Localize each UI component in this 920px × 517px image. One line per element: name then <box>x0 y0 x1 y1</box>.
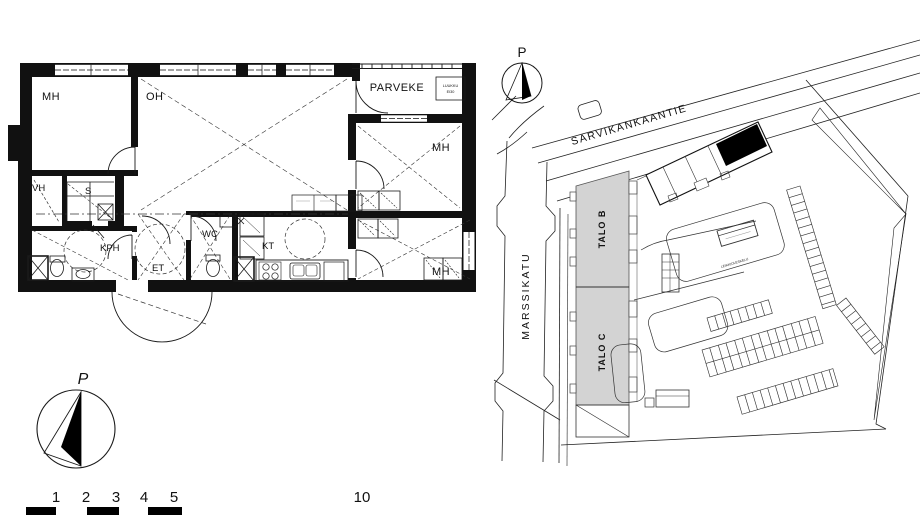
room-label-mh-bottom-right: MH <box>432 266 450 278</box>
scale-bar-segment <box>148 507 182 515</box>
play-area-structure <box>717 220 758 246</box>
site-plan-streets <box>492 40 920 466</box>
room-label-mh-top-right: MH <box>432 142 450 154</box>
floor-plan-labels: MH OH PARVEKE MH MH VH S KPH ET WC KT LU… <box>32 82 458 278</box>
scale-label-10: 10 <box>354 489 371 506</box>
room-label-wc: WC <box>202 229 218 240</box>
room-label-sauna: S <box>85 186 91 197</box>
room-label-mh-top-left: MH <box>42 91 60 103</box>
floor-plan: MH OH PARVEKE MH MH VH S KPH ET WC KT LU… <box>8 63 476 342</box>
room-label-kt: KT <box>262 241 274 252</box>
site-plan-parking <box>702 186 884 414</box>
room-label-oh: OH <box>146 91 164 103</box>
plan-canvas: MH OH PARVEKE MH MH VH S KPH ET WC KT LU… <box>0 0 920 517</box>
scale-label-1: 1 <box>52 489 60 506</box>
site-plan: SARVIKANKAANTIE MARSSIKATU TALO B TALO C… <box>492 40 920 466</box>
floor-plan-compass-label: P <box>78 371 89 388</box>
site-plan-compass: P <box>502 45 542 103</box>
compass-needle <box>61 392 81 466</box>
scale-label-3: 3 <box>112 489 120 506</box>
scale-label-2: 2 <box>82 489 90 506</box>
scale-label-5: 5 <box>170 489 178 506</box>
room-label-vh: VH <box>32 183 45 194</box>
room-label-parveke: PARVEKE <box>370 82 424 94</box>
site-plan-compass-label: P <box>517 45 526 60</box>
floor-plan-compass: P <box>37 371 115 468</box>
building-label-talo-b: TALO B <box>597 210 607 249</box>
compass-needle <box>522 63 531 100</box>
building-talo-a <box>637 122 772 205</box>
scale-bar: 1 2 3 4 5 10 <box>26 489 370 515</box>
hatch-box-label-line2: EI30 <box>447 90 455 94</box>
street-label-marssikatu: MARSSIKATU <box>520 252 532 339</box>
scale-label-4: 4 <box>140 489 148 506</box>
room-label-kph: KPH <box>100 243 120 254</box>
building-label-talo-c: TALO C <box>597 333 607 372</box>
scale-bar-segment <box>87 507 119 515</box>
room-label-et: ET <box>152 263 164 274</box>
drawing-sheet: MH OH PARVEKE MH MH VH S KPH ET WC KT LU… <box>0 0 920 517</box>
scale-bar-segment <box>26 507 56 515</box>
hatch-box-label-line1: LUUKKU <box>443 84 459 88</box>
